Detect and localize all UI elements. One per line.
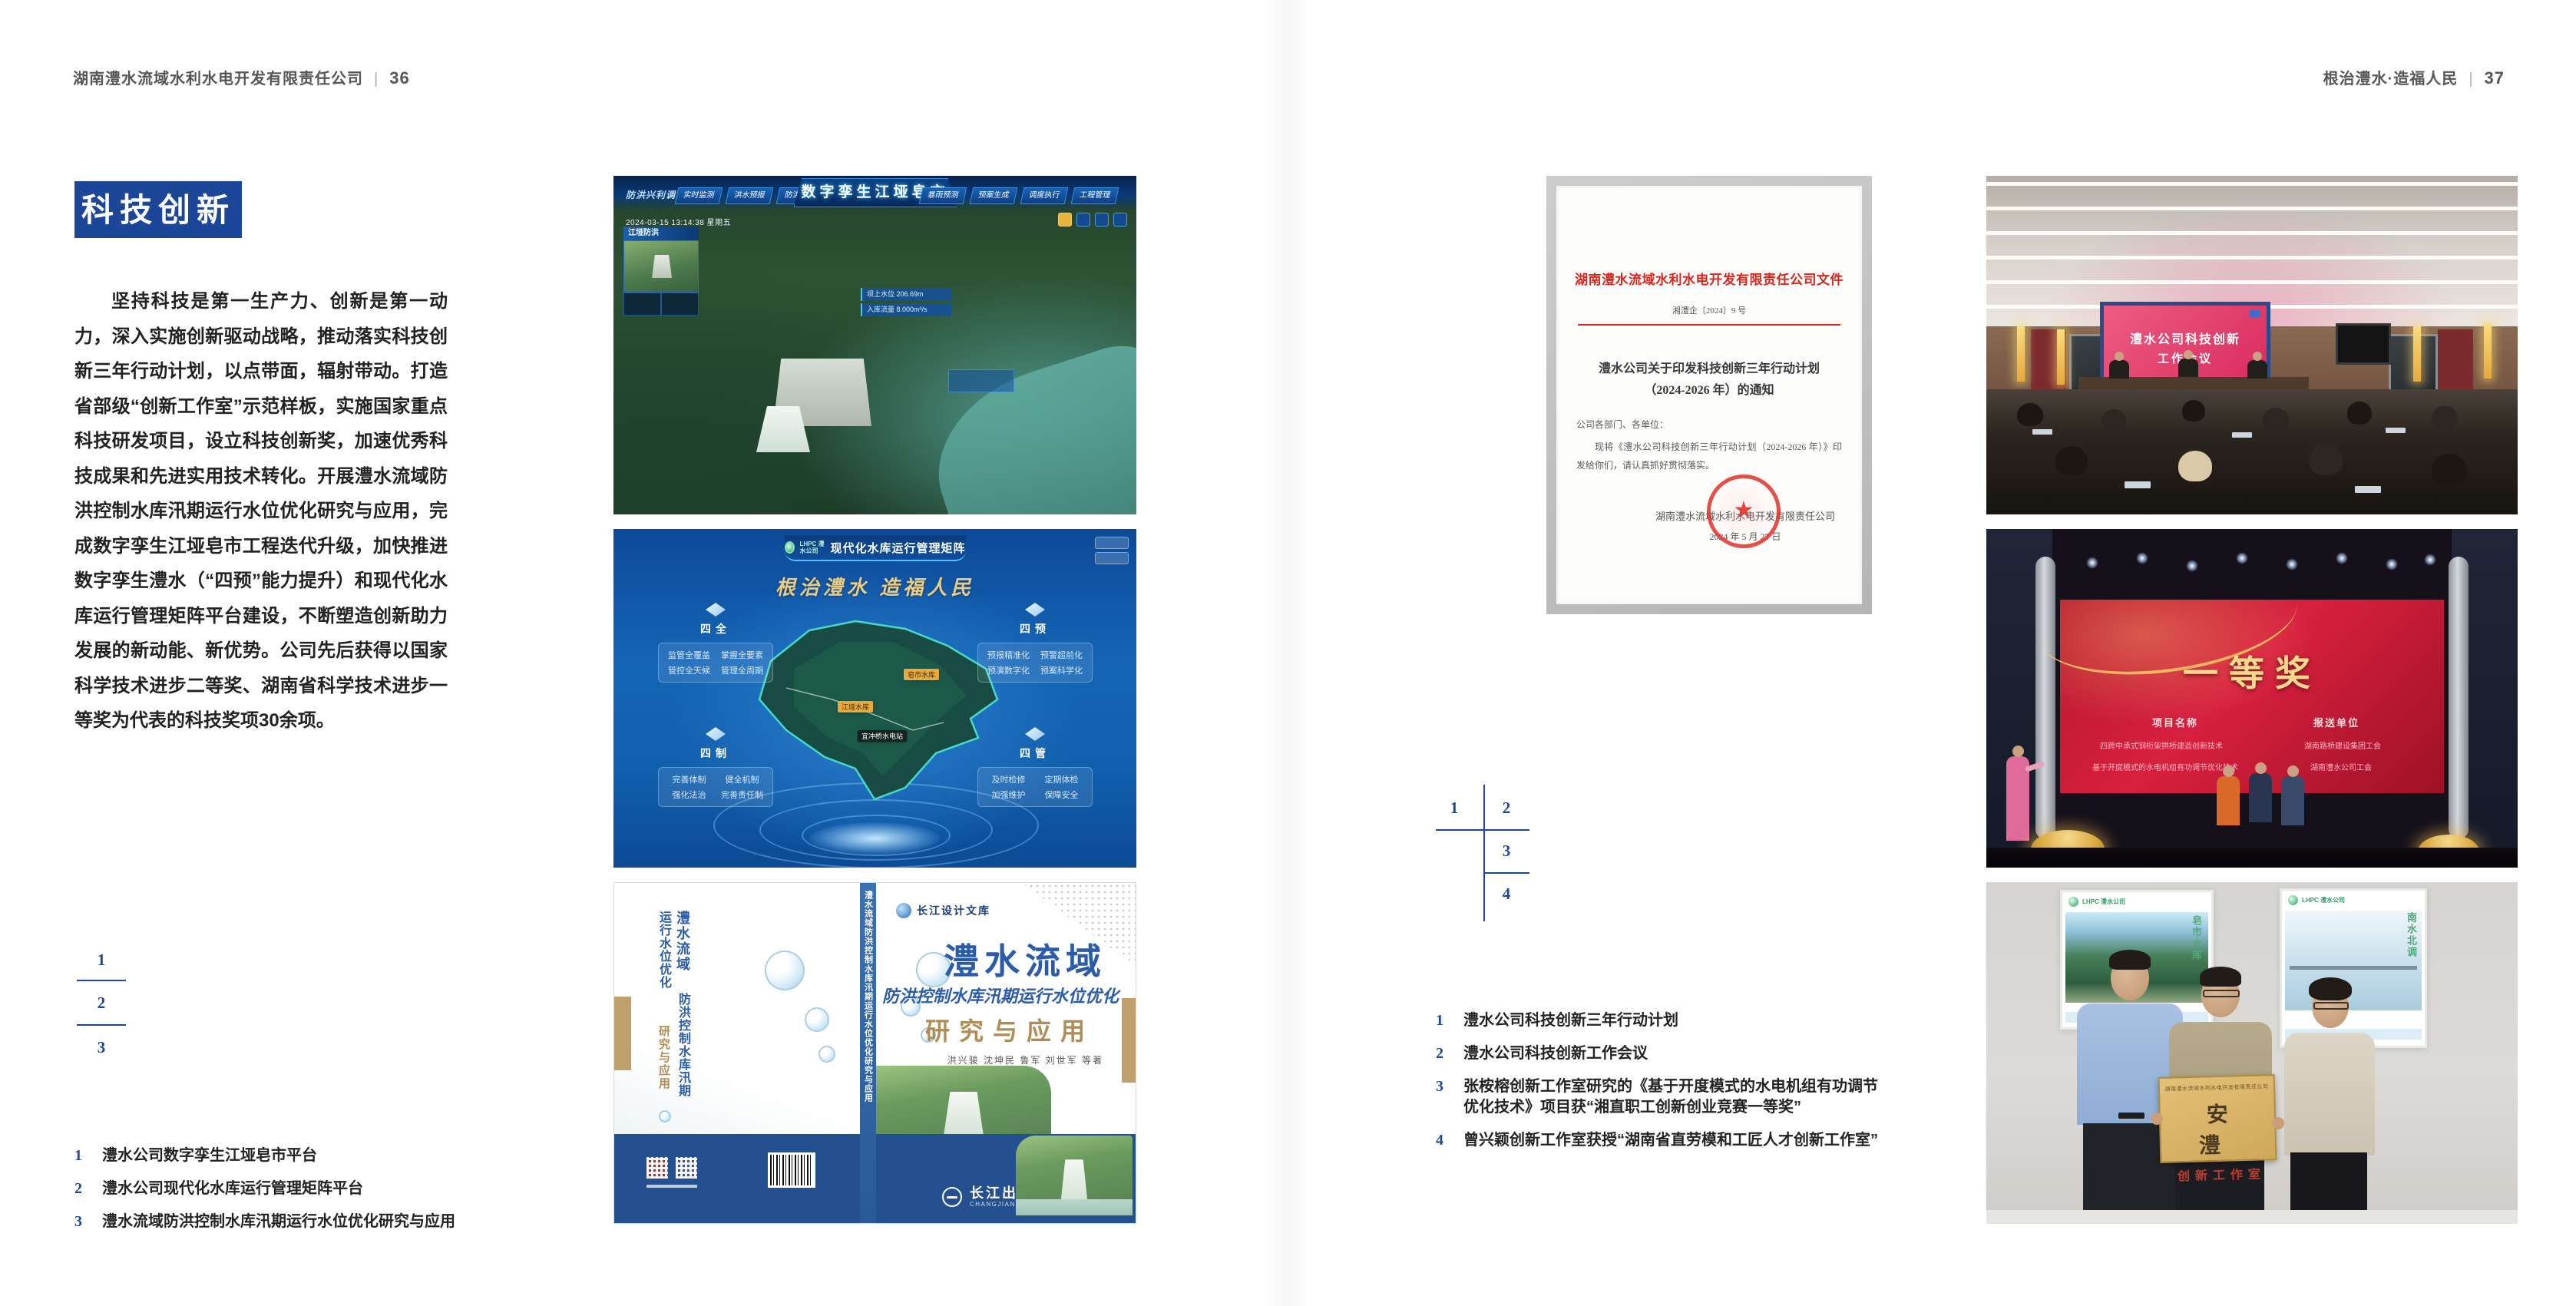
wall-tv-screen (2336, 323, 2391, 365)
tab-project-manage: 工程管理 (1071, 187, 1119, 204)
project-row: 四跨中承式钢桁架拱桥建造创新技术 (2100, 739, 2223, 751)
book-front-cover: 长江设计文库 澧水流域 防洪控制水库汛期运行水位优化 研究与应用 洪兴骏 沈坤民… (876, 883, 1136, 1224)
corner-title: 四全 (658, 621, 773, 636)
document-body: 现将《澧水公司科技创新三年行动计划（2024-2026 年）》印发给你们，请认真… (1576, 438, 1842, 474)
figure-key-left: 1 2 3 (77, 951, 126, 1066)
document-letterhead: 湖南澧水流域水利水电开发有限责任公司文件 (1556, 269, 1862, 288)
tab-realtime-monitor: 实时监测 (675, 187, 723, 204)
document-title-line2: （2024-2026 年）的通知 (1556, 379, 1862, 398)
document-number: 湘澧企〔2024〕9 号 (1556, 304, 1862, 316)
bubble (659, 1110, 671, 1122)
section-badge: 科技创新 (74, 181, 242, 238)
corner-items: 监管全覆盖 掌握全要素 管控全天候 管理全周期 (658, 643, 773, 683)
poster-brand: LHPC 澧水公司 (2068, 897, 2125, 907)
brand-text: LHPC 澧水公司 (2082, 898, 2125, 906)
corner-item: 加强维护 (984, 789, 1033, 801)
hair (2309, 977, 2352, 1000)
front-tan-tab (1122, 998, 1136, 1083)
page-number: 37 (2485, 68, 2505, 88)
series-badge: 长江设计文库 (896, 903, 990, 918)
spine-title: 澧水流域防洪控制水库汛期运行水位优化研究与应用 (862, 891, 875, 1103)
corner-item: 及时检修 (984, 773, 1033, 785)
hair (2200, 967, 2241, 987)
dam-inset-photo (623, 240, 699, 293)
series-name: 长江设计文库 (917, 903, 990, 918)
figure-key-number: 2 (77, 994, 126, 1013)
corner-title: 四制 (658, 746, 773, 761)
corner-siquan: 四全 监管全覆盖 掌握全要素 管控全天候 管理全周期 (658, 603, 773, 683)
qr-caption-line (646, 1185, 697, 1188)
document-sheet: 湖南澧水流域水利水电开发有限责任公司文件 湘澧企〔2024〕9 号 澧水公司关于… (1556, 186, 1862, 604)
bubble (818, 1046, 835, 1063)
spotlight (2136, 552, 2148, 564)
plaque-org-line: 湖南澧水流域水利水电开发有限责任公司 (2160, 1083, 2273, 1093)
page-fold (1265, 0, 1311, 1306)
floor (1986, 1210, 2518, 1224)
water-level-chip: 坝上水位 206.69m 入库流量 8.000m³/s (861, 288, 951, 319)
spotlight (2336, 552, 2348, 564)
host-silhouette (2006, 756, 2029, 841)
corner-item: 管理全周期 (718, 664, 766, 676)
speaker-silhouette (2178, 359, 2198, 377)
company-seal: ★ (1707, 474, 1781, 548)
caption-text: 曾兴颖创新工作室获授“湖南省直劳模和工匠人才创新工作室” (1463, 1130, 1878, 1151)
lhpc-logo-icon (785, 541, 795, 554)
ripple-glow (809, 822, 940, 855)
corner-sizhi: 四制 完善体制 健全机制 强化法治 完善责任制 (658, 727, 773, 807)
isbn-barcode (768, 1152, 815, 1188)
book-spine: 澧水流域防洪控制水库汛期运行水位优化研究与应用 (860, 883, 876, 1224)
dashboard-toolbar-icons (1058, 213, 1127, 226)
caption-number: 3 (74, 1212, 102, 1232)
page-header-right: 根治澧水·造福人民|37 (2323, 66, 2505, 88)
corner-item: 监管全覆盖 (665, 649, 713, 661)
awardee-blue (2281, 776, 2304, 825)
corner-item: 定期体检 (1037, 773, 1086, 785)
stat-inflow: 入库流量 8.000m³/s (861, 303, 951, 316)
corner-item: 预警超前化 (1037, 649, 1086, 661)
dashboard-tabs-right: 暴雨预测 预案生成 调度执行 工程管理 (921, 187, 1117, 204)
caption-item: 4曾兴颖创新工作室获授“湖南省直劳模和工匠人才创新工作室” (1436, 1130, 1889, 1151)
lhpc-logo-icon (2068, 897, 2078, 907)
stat-cell (661, 293, 699, 316)
monitor-icon (706, 603, 726, 617)
figure-key-line (1436, 829, 1529, 831)
caption-text: 澧水流域防洪控制水库汛期运行水位优化研究与应用 (102, 1212, 455, 1232)
changjiang-design-logo (896, 903, 911, 918)
laptop-on-desk (2125, 481, 2151, 488)
unit-row: 湖南澧水公司工会 (2310, 761, 2372, 772)
spotlight (2386, 558, 2398, 570)
speaker-silhouette (2247, 360, 2267, 379)
figure-key-line (77, 1024, 126, 1026)
figure-key-right: 1 2 3 4 (1436, 785, 1529, 923)
panel-stats (623, 293, 699, 316)
intro-paragraph: 坚持科技是第一生产力、创新是第一动力，深入实施创新驱动战略，推动落实科技创新三年… (74, 284, 448, 739)
caption-list-left: 1澧水公司数字孪生江垭皂市平台 2澧水公司现代化水库运行管理矩阵平台 3澧水流域… (74, 1146, 504, 1245)
poster-caption: 皂市水库 (2189, 915, 2204, 961)
page-header-left: 湖南澧水流域水利水电开发有限责任公司|36 (73, 66, 410, 88)
hair (2109, 950, 2151, 970)
book-title-tail: 研究与应用 (925, 1012, 1094, 1047)
attendee-head (2432, 406, 2458, 429)
document-title-line1: 澧水公司关于印发科技创新三年行动计划 (1556, 358, 1862, 376)
figure-key-number: 2 (1485, 798, 1528, 818)
caption-number: 2 (74, 1179, 102, 1199)
caption-item: 3张桉榕创新工作室研究的《基于开度模式的水电机组有功调节优化技术》项目获“湘直职… (1436, 1076, 1889, 1118)
bubble (765, 951, 805, 990)
wall-lamp (2017, 326, 2025, 382)
dam-photo-small (1016, 1136, 1133, 1215)
figure-matrix-platform: LHPC 澧水公司 现代化水库运行管理矩阵 根治澧水 造福人民 四全 监管全覆盖… (613, 529, 1136, 868)
glasses (2203, 990, 2240, 997)
spotlight (2424, 554, 2436, 566)
platform-brand: LHPC 澧水公司 (800, 541, 825, 554)
figure-key-number: 4 (1485, 884, 1528, 904)
header-divider: | (374, 71, 379, 88)
tab-rain-forecast: 暴雨预测 (919, 187, 967, 204)
figure-award-ceremony: 一等奖 项目名称 报送单位 四跨中承式钢桁架拱桥建造创新技术 基于开度模式的水电… (1986, 529, 2518, 868)
caption-text: 澧水公司科技创新三年行动计划 (1463, 1010, 1678, 1031)
caption-text: 张桉榕创新工作室研究的《基于开度模式的水电机组有功调节优化技术》项目获“湘直职工… (1463, 1076, 1889, 1118)
back-vertical-title: 澧水流域 防洪控制水库汛期运行水位优化 研究与应用 (654, 911, 693, 1103)
corner-item: 掌握全要素 (718, 649, 766, 661)
figure-key-number: 3 (1485, 841, 1528, 861)
tab-plan-generate: 预案生成 (970, 187, 1018, 204)
tab-flood-forecast: 洪水预报 (726, 187, 774, 204)
caption-item: 2澧水公司现代化水库运行管理矩阵平台 (74, 1179, 504, 1199)
caption-number: 2 (1436, 1043, 1463, 1064)
corner-items: 完善体制 健全机制 强化法治 完善责任制 (658, 767, 773, 807)
caption-item: 1澧水公司数字孪生江垭皂市平台 (74, 1146, 504, 1166)
spotlight (2086, 557, 2098, 569)
attendee-head (2017, 403, 2043, 426)
document-salutation: 公司各部门、各单位： (1576, 418, 1668, 431)
laptop-on-desk (2386, 428, 2406, 433)
qr-code-blue (676, 1157, 697, 1179)
platform-slogan: 根治澧水 造福人民 (775, 572, 975, 600)
spotlight (2236, 552, 2248, 564)
figure-meeting-photo: 澧水公司科技创新 工作会议 (1986, 176, 2518, 514)
figure-studio-group-photo: LHPC 澧水公司 皂市水库 LHPC 澧水公司 南水北调 湖南澧水流域水利水 (1986, 882, 2518, 1224)
corner-items: 及时检修 定期体检 加强维护 保障安全 (977, 767, 1093, 807)
institution-icon (706, 727, 726, 741)
caption-number: 1 (74, 1146, 102, 1166)
corner-item: 完善责任制 (718, 789, 766, 801)
overlay-chip (948, 369, 1014, 392)
tab-dispatch-execute: 调度执行 (1020, 187, 1069, 204)
hand (2151, 1113, 2163, 1125)
poster-caption: 南水北调 (2404, 912, 2419, 958)
corner-item: 预案科学化 (1037, 664, 1086, 676)
hand (2272, 1117, 2284, 1129)
user-icon (1058, 213, 1072, 226)
dashboard-datetime: 2024-03-15 13:14:38 星期五 (626, 216, 731, 227)
corner-title: 四管 (977, 746, 1093, 761)
platform-header: LHPC 澧水公司 现代化水库运行管理矩阵 (785, 535, 966, 561)
layers-icon (1076, 213, 1090, 226)
poster-brand: LHPC 澧水公司 (2288, 895, 2345, 905)
back-title-region: 澧水流域 (675, 911, 690, 972)
unit-row: 湖南路桥建设集团工会 (2304, 739, 2381, 751)
corner-item: 保障安全 (1037, 789, 1086, 801)
inset-dam-shape (652, 255, 672, 278)
book-back-cover: 澧水流域 防洪控制水库汛期运行水位优化 研究与应用 (614, 883, 860, 1224)
caption-item: 3澧水流域防洪控制水库汛期运行水位优化研究与应用 (74, 1212, 504, 1232)
attendee-head (2055, 446, 2088, 475)
lhpc-logo-icon (2288, 895, 2298, 905)
figure-book-cover: 澧水流域 防洪控制水库汛期运行水位优化 研究与应用 澧水流域防洪控制水库汛期运行… (613, 882, 1136, 1224)
book-title-sub: 防洪控制水库汛期运行水位优化 (882, 983, 1119, 1007)
qr-code-red (646, 1157, 668, 1179)
caption-number: 1 (1436, 1010, 1463, 1031)
caption-item: 1澧水公司科技创新三年行动计划 (1436, 1010, 1889, 1031)
plaque-title: 安 澧 (2160, 1096, 2275, 1161)
figure-key-line (1483, 872, 1529, 874)
marker-yichongqiao: 宜冲桥水电站 (858, 730, 907, 742)
reservoir-water (914, 334, 1136, 514)
attendee-head (2263, 408, 2289, 431)
stage-frame-pillar (2449, 557, 2469, 839)
brand-text: LHPC 澧水公司 (2302, 896, 2345, 904)
woman-beige-top (2284, 1033, 2375, 1156)
awardee-suit (2249, 773, 2272, 822)
belt (2118, 1113, 2144, 1119)
laptop-on-desk (2232, 432, 2252, 438)
figure-key-line (77, 980, 126, 981)
caption-text: 澧水公司数字孪生江垭皂市平台 (102, 1146, 317, 1166)
marker-zaoshi: 皂市水库 (904, 669, 939, 680)
wall-lamp (2484, 323, 2492, 379)
flood-panel-title: 江垭防洪 (623, 226, 699, 240)
corner-item: 完善体制 (665, 773, 713, 785)
platform-title: 现代化水库运行管理矩阵 (830, 540, 965, 556)
awardee-orange (2217, 776, 2240, 825)
corner-item: 预演数字化 (984, 664, 1033, 676)
corner-item: 预报精准化 (984, 649, 1033, 661)
header-motto: 根治澧水·造福人民 (2323, 71, 2459, 88)
figure-digital-twin-platform: 防洪兴利调度 实时监测 洪水预报 防洪预警 数字孪生江垭皂市 暴雨预测 预案生成… (613, 176, 1136, 514)
bubble (805, 1007, 829, 1032)
stat-water-level: 坝上水位 206.69m (861, 288, 951, 301)
attendee-head (2432, 454, 2467, 486)
alert-icon (1113, 213, 1127, 226)
weather-button (1095, 537, 1129, 549)
caption-number: 4 (1436, 1130, 1463, 1151)
marker-jiangya: 江垭水库 (838, 701, 873, 713)
caption-number: 3 (1436, 1076, 1463, 1097)
first-prize-text: 一等奖 (2060, 646, 2444, 696)
plaque-subtitle: 创新工作室 (2162, 1163, 2277, 1185)
attendee-head (2347, 402, 2372, 425)
maintenance-icon (1025, 727, 1045, 741)
figure-key-number: 1 (1433, 798, 1476, 818)
attendee-head (2182, 400, 2205, 422)
poster-bridge: LHPC 澧水公司 南水北调 (2280, 888, 2427, 1048)
figure-official-document: 湖南澧水流域水利水电开发有限责任公司文件 湘澧企〔2024〕9 号 澧水公司关于… (1546, 176, 1872, 614)
attendee-head (2101, 409, 2126, 431)
corner-siguan: 四管 及时检修 定期体检 加强维护 保障安全 (977, 727, 1093, 807)
stage-floor (1986, 848, 2518, 868)
column-header-project: 项目名称 (2152, 715, 2198, 729)
document-red-rule (1578, 324, 1840, 326)
speaker-silhouette (2109, 360, 2129, 379)
magazine-spread: 湖南澧水流域水利水电开发有限责任公司|36 根治澧水·造福人民|37 科技创新 … (0, 0, 2576, 1306)
spotlight (2286, 558, 2298, 570)
glasses (2313, 1002, 2349, 1010)
laptop-on-desk (2355, 486, 2381, 493)
basin-terrain-map (740, 615, 1009, 803)
laptop-on-desk (2032, 429, 2052, 435)
stat-cell (623, 293, 661, 316)
book-authors: 洪兴骏 沈坤民 鲁军 刘世军 等著 (947, 1053, 1103, 1066)
caption-item: 2澧水公司科技创新工作会议 (1436, 1043, 1889, 1064)
led-screen: 一等奖 项目名称 报送单位 四跨中承式钢桁架拱桥建造创新技术 基于开度模式的水电… (2060, 600, 2444, 793)
slide-logo (2250, 310, 2260, 317)
back-tan-tab (614, 997, 631, 1070)
wall-lamp (2413, 326, 2421, 382)
caption-text: 澧水公司现代化水库运行管理矩阵平台 (102, 1179, 363, 1199)
corner-items: 预报精准化 预警超前化 预演数字化 预案科学化 (977, 643, 1093, 683)
stage-frame-pillar (2035, 557, 2055, 839)
corner-item: 强化法治 (665, 789, 713, 801)
page-number: 36 (389, 68, 409, 88)
innovation-studio-plaque: 湖南澧水流域水利水电开发有限责任公司 安 澧 创新工作室 (2158, 1074, 2277, 1163)
corner-item: 健全机制 (718, 773, 766, 785)
corner-siyu: 四预 预报精准化 预警超前化 预演数字化 预案科学化 (977, 603, 1093, 683)
figure-key-number: 1 (77, 951, 126, 970)
back-title-tail: 研究与应用 (657, 1025, 670, 1090)
back-bottom-band (614, 1134, 860, 1224)
column-header-unit: 报送单位 (2313, 715, 2359, 729)
wall-lamp (2057, 329, 2065, 385)
poster-riverscape (2285, 911, 2422, 1010)
corner-title: 四预 (977, 621, 1093, 636)
locate-icon (1095, 213, 1109, 226)
caption-text: 澧水公司科技创新工作会议 (1463, 1043, 1648, 1064)
slide-title-line1: 澧水公司科技创新 (2104, 329, 2267, 347)
header-company: 湖南澧水流域水利水电开发有限责任公司 (73, 71, 363, 88)
changjiang-press-logo (942, 1187, 962, 1207)
header-divider: | (2469, 71, 2473, 88)
audience-area (1986, 389, 2518, 514)
figure-key-number: 3 (77, 1038, 126, 1057)
flood-panel: 江垭防洪 (623, 226, 699, 316)
project-row: 基于开度模式的水电机组有功调节优化技术 (2092, 761, 2238, 772)
corner-item: 管控全天候 (665, 664, 713, 676)
menu-button (1095, 552, 1129, 564)
bridge-silhouette (2290, 966, 2417, 970)
forecast-icon (1025, 603, 1045, 617)
caption-list-right: 1澧水公司科技创新三年行动计划 2澧水公司科技创新工作会议 3张桉榕创新工作室研… (1436, 1010, 1889, 1163)
book-title-region: 澧水流域 (944, 934, 1106, 984)
dam-tailwater (1016, 1199, 1133, 1215)
attendee-beige-jacket (2178, 451, 2212, 481)
attendee-head (2309, 445, 2343, 475)
